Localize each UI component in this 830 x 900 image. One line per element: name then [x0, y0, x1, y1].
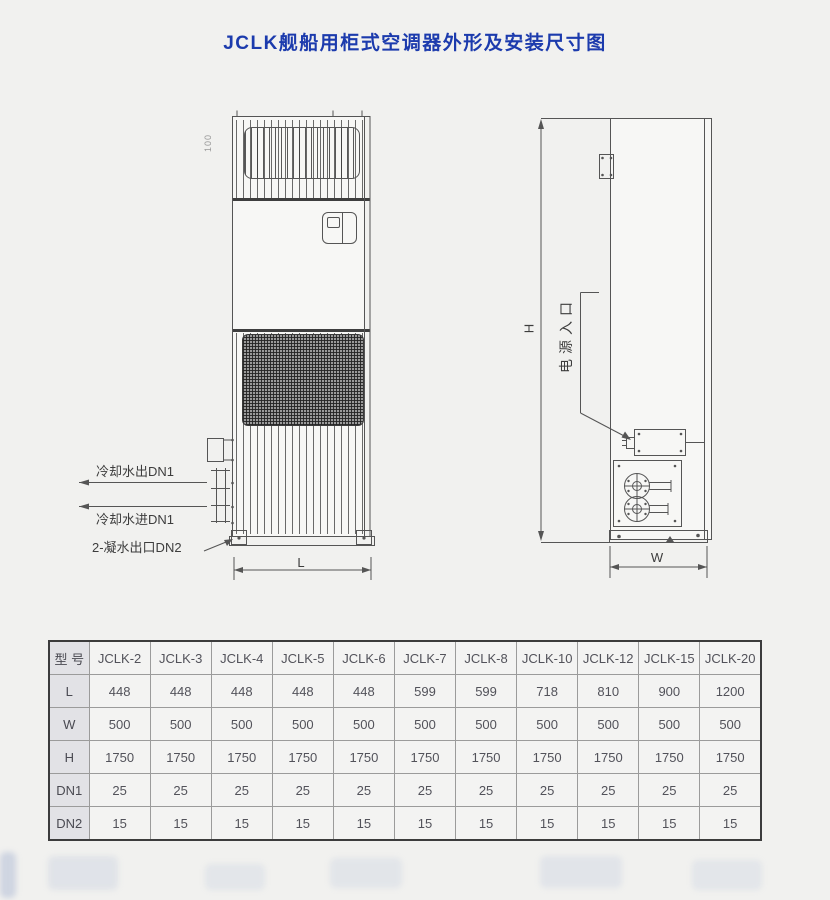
- table-value-cell: 500: [456, 708, 517, 741]
- side-base: [610, 531, 708, 543]
- front-base: [230, 537, 375, 546]
- side-cabinet-outline: [611, 119, 712, 540]
- model-header-cell: JCLK-5: [272, 641, 333, 675]
- table-value-cell: 448: [272, 675, 333, 708]
- table-value-cell: 15: [333, 807, 394, 841]
- table-value-cell: 1750: [456, 741, 517, 774]
- model-header-cell: JCLK-15: [639, 641, 700, 675]
- pipe-bracket: [208, 439, 224, 462]
- table-value-cell: 25: [333, 774, 394, 807]
- table-value-cell: 1750: [700, 741, 761, 774]
- table-value-cell: 25: [394, 774, 455, 807]
- cable-gland: [627, 438, 635, 449]
- ink-bleed-smudge: [0, 852, 16, 898]
- table-value-cell: 500: [578, 708, 639, 741]
- table-value-cell: 448: [89, 675, 150, 708]
- table-value-cell: 15: [517, 807, 578, 841]
- table-value-cell: 1750: [333, 741, 394, 774]
- table-value-cell: 25: [211, 774, 272, 807]
- table-value-cell: 500: [639, 708, 700, 741]
- model-header-cell: JCLK-2: [89, 641, 150, 675]
- table-value-cell: 448: [333, 675, 394, 708]
- ink-bleed-smudge: [692, 860, 762, 890]
- table-value-cell: 448: [150, 675, 211, 708]
- model-header-cell: JCLK-8: [456, 641, 517, 675]
- ink-bleed-smudge: [540, 856, 622, 888]
- table-row: H175017501750175017501750175017501750175…: [49, 741, 761, 774]
- table-value-cell: 500: [272, 708, 333, 741]
- table-value-cell: 15: [456, 807, 517, 841]
- table-value-cell: 15: [211, 807, 272, 841]
- table-value-cell: 15: [700, 807, 761, 841]
- table-value-cell: 500: [394, 708, 455, 741]
- model-header-cell: JCLK-3: [150, 641, 211, 675]
- table-value-cell: 25: [700, 774, 761, 807]
- row-label-cell: W: [49, 708, 89, 741]
- table-value-cell: 500: [89, 708, 150, 741]
- table-value-cell: 448: [211, 675, 272, 708]
- spec-table-container: 型 号JCLK-2JCLK-3JCLK-4JCLK-5JCLK-6JCLK-7J…: [48, 640, 762, 841]
- table-value-cell: 1750: [272, 741, 333, 774]
- table-value-cell: 900: [639, 675, 700, 708]
- table-value-cell: 1750: [517, 741, 578, 774]
- row-label-cell: L: [49, 675, 89, 708]
- table-value-cell: 1750: [394, 741, 455, 774]
- label-condensate-out: 2-凝水出口DN2: [92, 537, 182, 556]
- ink-bleed-smudge: [48, 856, 118, 890]
- table-value-cell: 1750: [578, 741, 639, 774]
- model-header-cell: JCLK-10: [517, 641, 578, 675]
- label-cooling-water-in: 冷却水进DN1: [96, 509, 174, 528]
- row-label-cell: H: [49, 741, 89, 774]
- table-value-cell: 500: [700, 708, 761, 741]
- table-value-cell: 15: [394, 807, 455, 841]
- model-header-cell: JCLK-12: [578, 641, 639, 675]
- table-value-cell: 599: [394, 675, 455, 708]
- model-header-cell: JCLK-6: [333, 641, 394, 675]
- dim-label-W: W: [648, 550, 666, 565]
- spec-table: 型 号JCLK-2JCLK-3JCLK-4JCLK-5JCLK-6JCLK-7J…: [48, 640, 762, 841]
- table-row: DN21515151515151515151515: [49, 807, 761, 841]
- table-row: W500500500500500500500500500500500: [49, 708, 761, 741]
- table-value-cell: 25: [639, 774, 700, 807]
- row-label-cell: DN2: [49, 807, 89, 841]
- label-power-inlet: 电源入口: [556, 270, 574, 400]
- table-value-cell: 500: [333, 708, 394, 741]
- table-value-cell: 25: [578, 774, 639, 807]
- table-header-row: 型 号JCLK-2JCLK-3JCLK-4JCLK-5JCLK-6JCLK-7J…: [49, 641, 761, 675]
- table-value-cell: 15: [639, 807, 700, 841]
- leader-power-inlet-diagonal: [581, 413, 629, 438]
- front-cabinet-outline: [233, 117, 371, 537]
- table-value-cell: 1750: [150, 741, 211, 774]
- dim-label-H: H: [522, 321, 537, 337]
- top-dimension-label: 100: [203, 111, 213, 175]
- row-label-cell: DN1: [49, 774, 89, 807]
- table-corner-header: 型 号: [49, 641, 89, 675]
- table-value-cell: 15: [89, 807, 150, 841]
- model-header-cell: JCLK-4: [211, 641, 272, 675]
- table-value-cell: 25: [272, 774, 333, 807]
- table-value-cell: 1750: [639, 741, 700, 774]
- table-value-cell: 500: [517, 708, 578, 741]
- table-value-cell: 25: [89, 774, 150, 807]
- table-value-cell: 500: [211, 708, 272, 741]
- table-value-cell: 15: [150, 807, 211, 841]
- table-value-cell: 500: [150, 708, 211, 741]
- table-value-cell: 1750: [89, 741, 150, 774]
- ink-bleed-smudge: [330, 858, 402, 888]
- table-row: L4484484484484485995997188109001200: [49, 675, 761, 708]
- table-value-cell: 1200: [700, 675, 761, 708]
- junction-box: [635, 430, 686, 456]
- table-value-cell: 810: [578, 675, 639, 708]
- table-value-cell: 15: [272, 807, 333, 841]
- table-value-cell: 599: [456, 675, 517, 708]
- table-row: DN12525252525252525252525: [49, 774, 761, 807]
- table-value-cell: 25: [456, 774, 517, 807]
- table-value-cell: 25: [150, 774, 211, 807]
- table-value-cell: 25: [517, 774, 578, 807]
- table-value-cell: 718: [517, 675, 578, 708]
- dim-label-L: L: [293, 555, 309, 570]
- ink-bleed-smudge: [205, 864, 265, 890]
- scanned-drawing-page: JCLK舰船用柜式空调器外形及安装尺寸图: [0, 0, 830, 900]
- table-value-cell: 1750: [211, 741, 272, 774]
- label-cooling-water-out: 冷却水出DN1: [96, 461, 174, 480]
- table-value-cell: 15: [578, 807, 639, 841]
- model-header-cell: JCLK-7: [394, 641, 455, 675]
- model-header-cell: JCLK-20: [700, 641, 761, 675]
